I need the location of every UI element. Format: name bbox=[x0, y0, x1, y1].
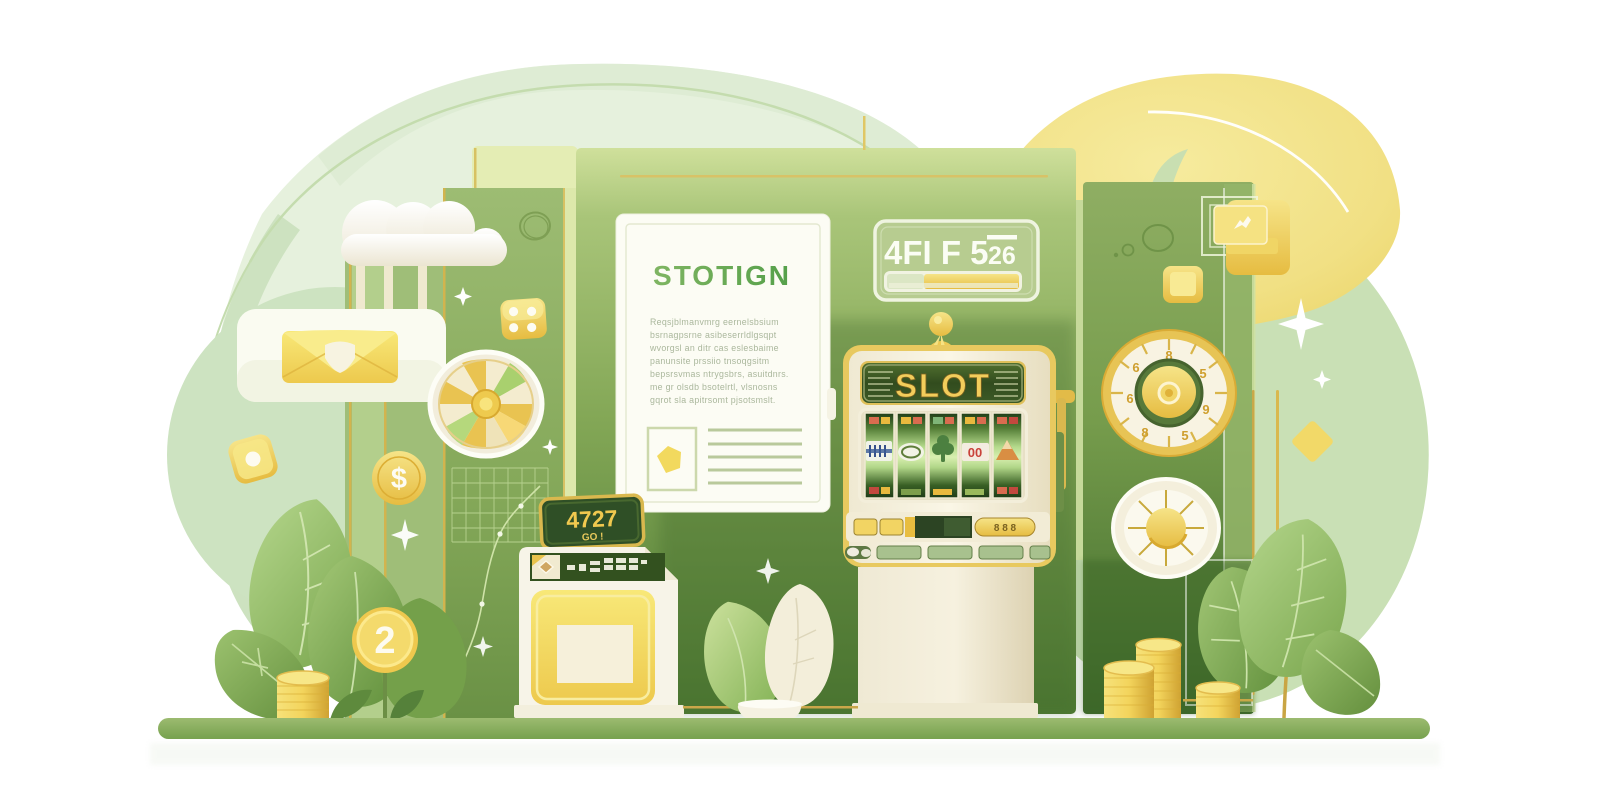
svg-text:5: 5 bbox=[1199, 366, 1206, 381]
svg-text:6: 6 bbox=[1126, 391, 1133, 406]
svg-text:5: 5 bbox=[1181, 428, 1188, 443]
svg-text:8 8 8: 8 8 8 bbox=[994, 523, 1017, 534]
svg-text:panunsite prssiio tnsoqgsitm: panunsite prssiio tnsoqgsitm bbox=[650, 356, 769, 366]
svg-text:4727: 4727 bbox=[566, 505, 618, 533]
svg-text:6: 6 bbox=[1132, 360, 1139, 375]
svg-text:bepsrsvmas ntrygsbrs, asuitdnr: bepsrsvmas ntrygsbrs, asuitdnrs. bbox=[650, 369, 789, 379]
svg-text:bsrnagpsrne asibeserrldlgsqpt: bsrnagpsrne asibeserrldlgsqpt bbox=[650, 330, 777, 340]
svg-text:Reqsjblmanvmrg eernelsbsium: Reqsjblmanvmrg eernelsbsium bbox=[650, 317, 779, 327]
svg-text:$: $ bbox=[391, 463, 407, 495]
svg-text:me gr olsdb bsotelrtl, vlsnosn: me gr olsdb bsotelrtl, vlsnosns bbox=[650, 382, 778, 392]
svg-text:9: 9 bbox=[1202, 402, 1209, 417]
svg-text:SLOT: SLOT bbox=[895, 367, 991, 404]
svg-text:wvorgsl an ditr cas eslesbaime: wvorgsl an ditr cas eslesbaime bbox=[649, 343, 779, 353]
svg-text:2: 2 bbox=[374, 620, 395, 662]
svg-text:26: 26 bbox=[988, 242, 1016, 270]
svg-text:4FI F 5: 4FI F 5 bbox=[884, 234, 989, 271]
svg-text:00: 00 bbox=[968, 445, 982, 460]
svg-text:GO !: GO ! bbox=[582, 532, 604, 544]
svg-text:STOTIGN: STOTIGN bbox=[653, 260, 791, 291]
svg-text:8: 8 bbox=[1141, 425, 1148, 440]
svg-text:gqrot sla apitrsomt pjsotsmslt: gqrot sla apitrsomt pjsotsmslt. bbox=[650, 395, 776, 405]
